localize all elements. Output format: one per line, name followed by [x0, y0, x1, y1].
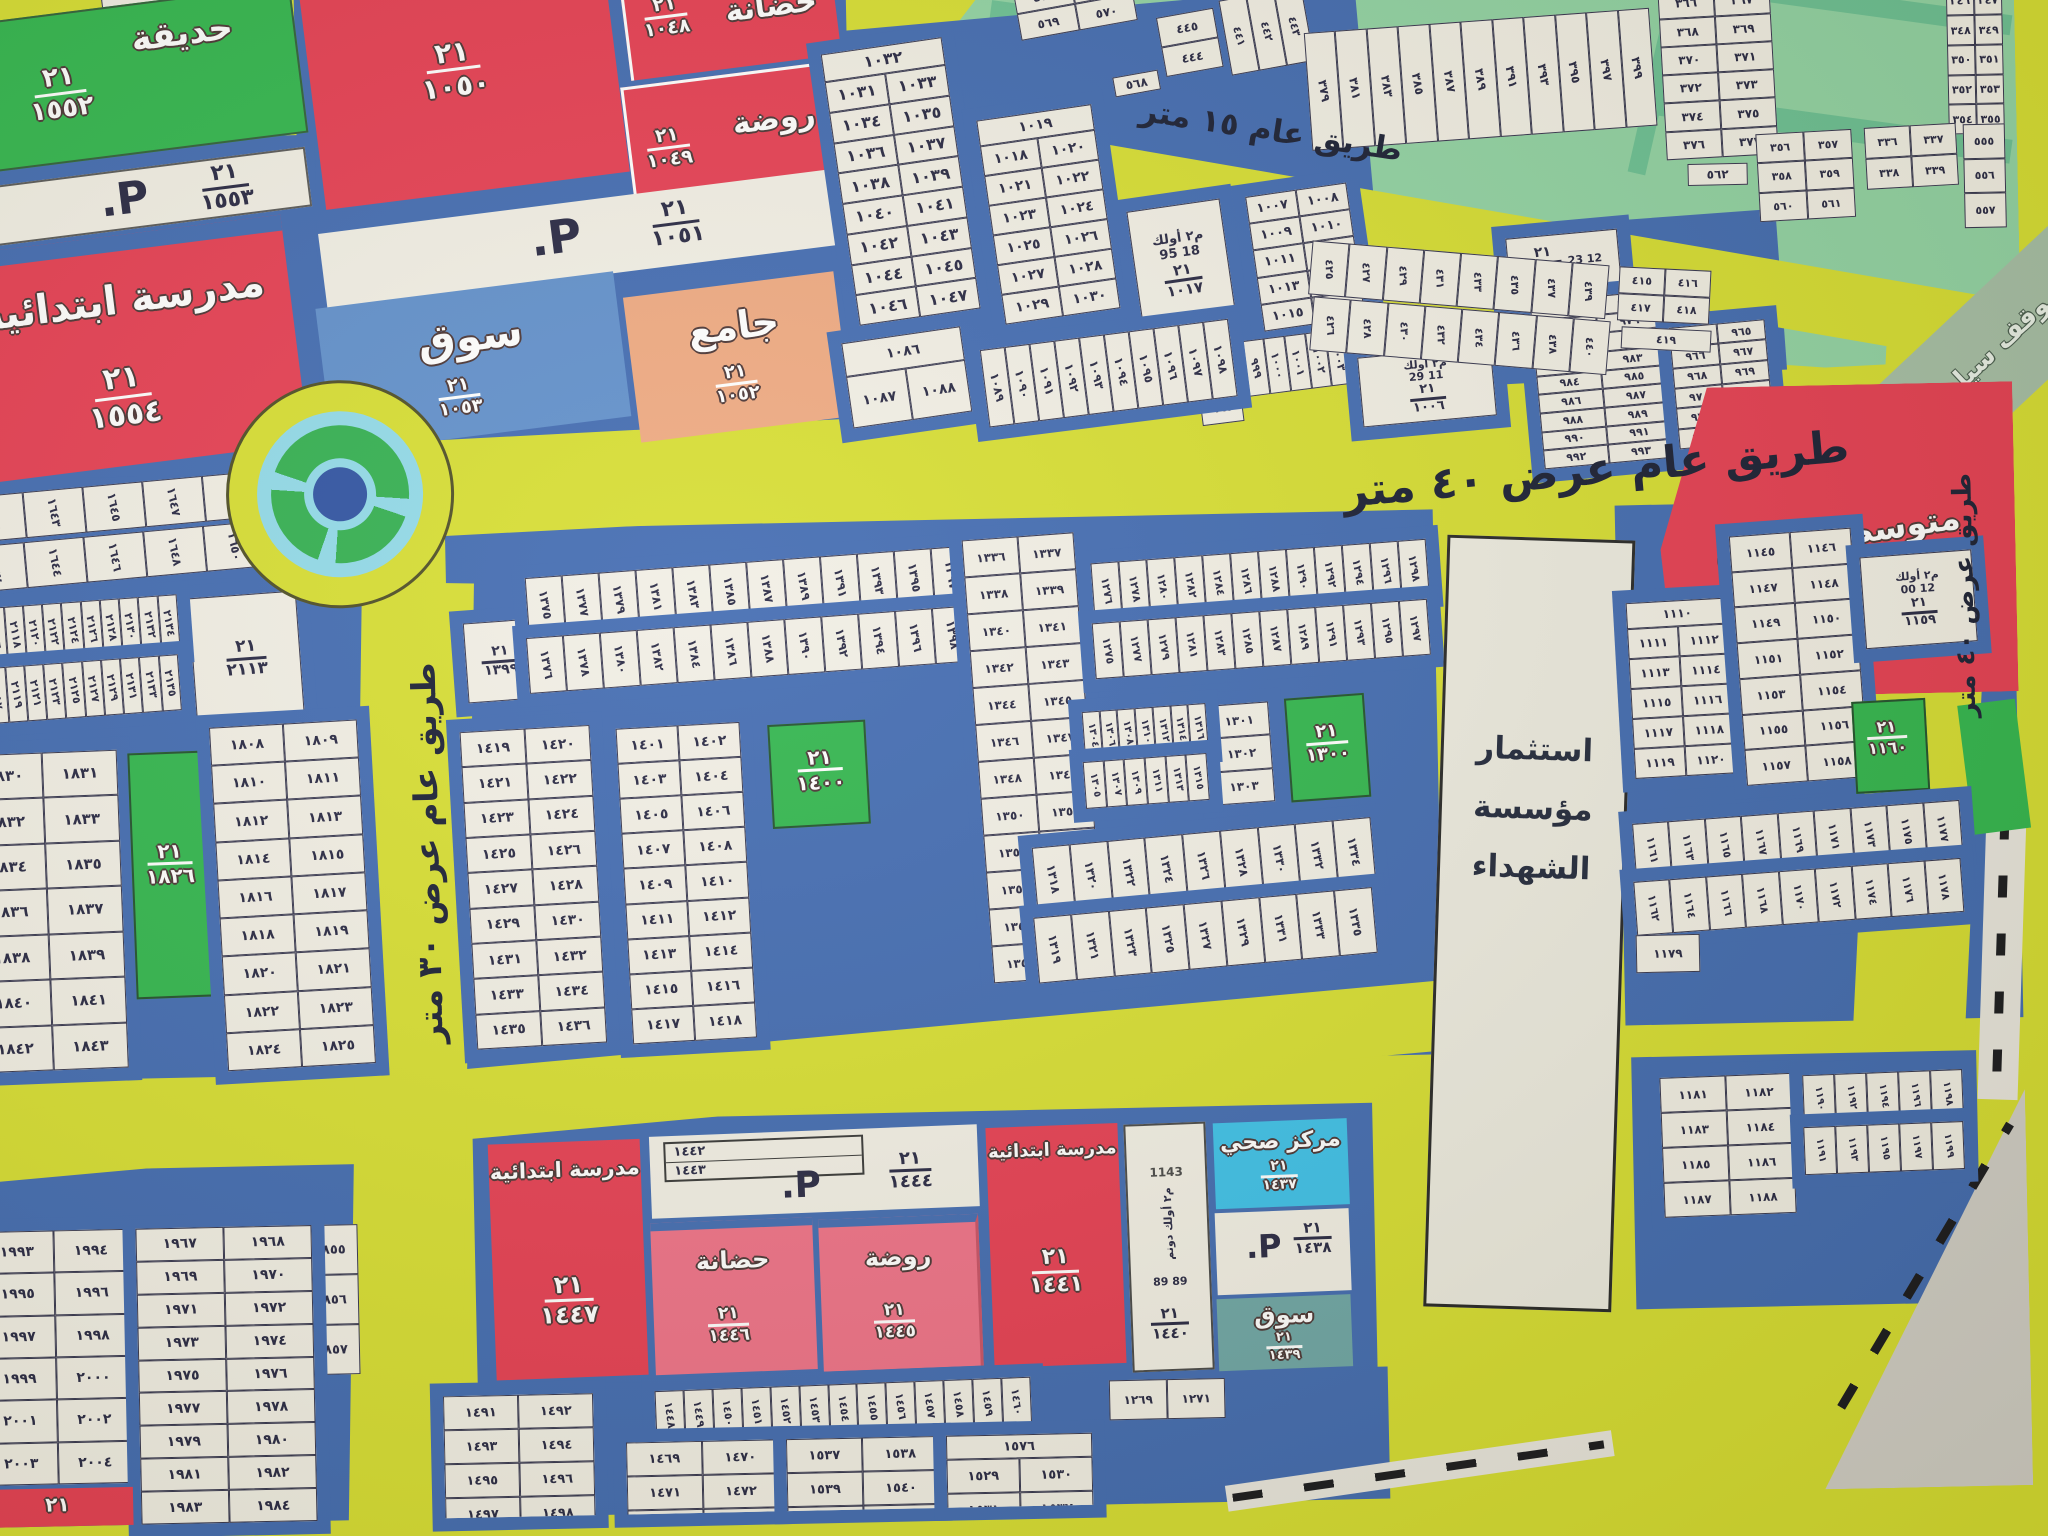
plot-cell: ١٣٣٦	[962, 536, 1021, 577]
p-label: P.	[780, 1164, 822, 1207]
plot-cell: ١٤٦٩	[626, 1441, 703, 1477]
plot-cell: ٥٦٠	[1759, 190, 1809, 222]
plot-cell: ١٤٠١	[616, 725, 680, 764]
plot-cell: ٤٣٥	[1494, 256, 1536, 313]
plot-cell: ١٩٧٣	[137, 1326, 226, 1361]
plot-cell: ١١٦٧	[1741, 813, 1781, 870]
plot-cell: ٣٧٤	[1664, 101, 1721, 132]
plot-cell: ١٣٠٦	[1099, 709, 1120, 757]
plot-cell: ١١٥٢	[1797, 634, 1860, 674]
plot-cell: ١٨١٨	[220, 914, 296, 956]
plot-cell: ١٥٣٧	[786, 1438, 863, 1474]
plot-cell: ١٦٤٤	[24, 537, 88, 588]
plot-cell: ١٣٣٠	[1257, 824, 1301, 893]
plot-cell: ١١٤٨	[1792, 563, 1855, 603]
plot-cell: ١٢٨٣	[1203, 613, 1235, 671]
plot-cell: ٢٠٠١	[0, 1400, 58, 1444]
plot-cell: ١٣٢٠	[1069, 841, 1113, 910]
plot-cell: ١٤٠٨	[683, 827, 747, 866]
plot-cell: ١٤٠٦	[681, 792, 745, 831]
zone-label: حضانة	[723, 0, 819, 29]
plot-cell: ١١١٦	[1681, 683, 1734, 716]
plot-number: ٢١١٠٤٩	[643, 122, 695, 173]
plot-cell: ٤١٧	[1617, 293, 1664, 322]
plot-cell: ١٦٤٧	[142, 476, 206, 527]
plot-cell: ١٩٨٤	[229, 1488, 318, 1523]
plot-cell: ٣٥٨	[1757, 161, 1807, 193]
plot-cell: ٤٣٣	[1457, 253, 1499, 310]
plot-cell: ١٦٤٥	[82, 481, 146, 532]
plot-cell: ١٤٩٣	[444, 1429, 520, 1465]
plot-cell: ١١٧٨	[1924, 858, 1964, 915]
plot-cell: ١٤٠٢	[677, 722, 741, 761]
road-label-right-40m: طريق عرض ٤٠ متر	[1913, 429, 2016, 761]
plot-number: ٢١١٤٤١	[1028, 1244, 1084, 1298]
plot-number: ٢١١٣٠٠	[1304, 720, 1351, 766]
awlak-block-1017: م٢ أولك18 95 ٢١١٠١٧	[1126, 199, 1236, 331]
plot-cell: ١٤٧٢	[703, 1473, 780, 1509]
plot-cell: ١٩٧٠	[224, 1258, 313, 1293]
plot-cell: ١٣٧٨	[563, 633, 604, 692]
plot-cell: ١٤٠٧	[621, 831, 685, 870]
plot-cell: ١٣٢١	[1071, 911, 1115, 980]
plot-cell: ٣٧٥	[1720, 98, 1777, 129]
plot-cell: ١٤٣٢	[536, 937, 603, 976]
plot-cell: ١٠٨٨	[905, 360, 972, 420]
plot-cell: ١١١١	[1627, 626, 1680, 659]
plot-cell: ١٤١٤	[689, 932, 753, 971]
plot-number: ٢١١٤٤٤	[888, 1148, 934, 1193]
plot-block-336-339: ٣٣٧٣٣٦٣٣٩٣٣٨	[1864, 123, 1959, 190]
plot-block-1808-1825: ١٨٠٩١٨٠٨١٨١١١٨١٠١٨١٣١٨١٢١٨١٥١٨١٤١٨١٧١٨١٦…	[209, 720, 376, 1072]
zone-label: استثمار مؤسسة الشهداء	[1439, 718, 1626, 900]
plot-cell: ١١٨١	[1659, 1075, 1726, 1113]
zone-label: سوق	[318, 293, 622, 379]
zone-label: سوق	[1217, 1298, 1352, 1331]
plot-cell: ١١٨٢	[1725, 1073, 1792, 1111]
plot-cell: ١٤٠٤	[679, 757, 743, 796]
plot-cell: ١٣٨٩	[783, 556, 824, 615]
plot-cell: ١٣١٨	[1032, 844, 1076, 913]
plot-cell: ١١٥٠	[1795, 599, 1858, 639]
plot-cell: ١٤١٢	[687, 897, 751, 936]
plot-cell: ١٩٩٣	[0, 1230, 54, 1274]
plot-cell: ١٣٣٢	[1295, 820, 1339, 889]
plot-cell: ٣٤٨	[1946, 15, 1975, 45]
plot-cell: ١١٩٨	[1930, 1069, 1964, 1118]
zone-label: روضة	[819, 1240, 977, 1274]
plot-cell: ١٤١٥	[629, 971, 693, 1010]
plot-cell: ١٢٩٨	[1398, 539, 1430, 597]
plot-cell: ١٢٩٣	[1343, 603, 1375, 661]
plot-cell: ١١٦٩	[1777, 811, 1817, 868]
plot-cell: ١٣٢٨	[1220, 827, 1264, 896]
plot-cell: ٣٣٩	[1911, 154, 1959, 188]
plot-cell: ١٨١٦	[218, 876, 294, 918]
plot-cell: ١٤٦٠	[1001, 1377, 1032, 1426]
plot-cell: ١٥٢٩	[946, 1458, 1020, 1494]
plot-cell: ١٣٨٠	[600, 630, 641, 689]
plot-number: ٢١١٤٣٩	[1266, 1330, 1303, 1363]
plot-cell: ٣٧١	[1716, 41, 1773, 72]
plot-block-1993-2004: ١٩٩٤١٩٩٣١٩٩٦١٩٩٥١٩٩٨١٩٩٧٢٠٠٠١٩٩٩٢٠٠٢٢٠٠١…	[0, 1229, 133, 1486]
plot-cell: ١١٦٦	[1706, 874, 1746, 931]
plot-cell: ١٤٩٥	[444, 1463, 520, 1499]
plot-cell: ١٦٤٣	[23, 487, 87, 538]
boundary-dashes	[1992, 817, 2009, 1087]
plot-id-latin: 1143	[1127, 1164, 1205, 1181]
plot-cell: ١٤١٦	[691, 967, 755, 1006]
plot-cell: ٣٧٦	[1665, 129, 1722, 160]
plot-cell: ١٣٨٦	[710, 622, 751, 681]
plot-cell: ١٣٢٧	[1184, 901, 1228, 970]
plot-cell: ١٨٣١	[42, 750, 119, 798]
plot-cell-419: ٤١٩	[1621, 326, 1712, 352]
plot-cell: ١٤٧٤	[703, 1507, 779, 1514]
plot-cell: ١١٧٧	[1923, 800, 1963, 857]
plot-cell: ١٥٣٢	[1020, 1491, 1093, 1508]
plot-cell: ٥٦١	[1807, 187, 1857, 219]
plot-cell: ١١٩٢	[1834, 1073, 1868, 1122]
plot-cell: ١٤٧٣	[627, 1509, 704, 1515]
plot-cell: ١١٧٣	[1850, 805, 1890, 862]
plot-cell: ١٩٦٨	[223, 1225, 312, 1260]
plot-cell: ٣٥٦	[1755, 132, 1805, 164]
plot-cell: ١٠٨٧	[846, 368, 913, 428]
plot-cell: ١٥٣٩	[787, 1472, 864, 1508]
plot-cell: ١٣٤٦	[975, 721, 1034, 762]
plot-cell: ١٢٧٦	[1090, 561, 1122, 619]
plot-cell: ١١١٨	[1683, 713, 1736, 746]
plot-cell: ١٤١٨	[693, 1002, 757, 1041]
plot-cell: ١٤٥١	[741, 1387, 772, 1436]
plot-cell: ١٣١٥	[1186, 753, 1210, 801]
plot-cell: ١٨٣٧	[47, 886, 124, 934]
plot-cell: ١٣١٦	[1188, 703, 1209, 751]
plot-cell: ٣٤٦	[1946, 0, 1975, 16]
plot-cell: ١٢٨٢	[1174, 555, 1206, 613]
plot-cell: ١٤٢٨	[532, 866, 599, 905]
plot-cell: ٤٣٧	[1531, 259, 1573, 316]
plot-cell: ١٢٨٧	[1259, 609, 1291, 667]
plot-cell: ١٦٤١	[0, 492, 27, 543]
plot-cell: ١٤٠٣	[618, 760, 682, 799]
plot-cell: ١٣٤١	[1023, 606, 1082, 647]
plot-cell: ١١٥٣	[1739, 675, 1802, 715]
plot-cell: ٣٥٢	[1948, 75, 1977, 105]
plot-cell: ١٣٠١	[1208, 701, 1270, 739]
p-label: P.	[97, 171, 152, 228]
plot-cell: ١٢٧١	[1167, 1378, 1226, 1419]
plot-cell: ١١١٥	[1630, 686, 1683, 719]
plot-cell: ٤٢٨	[1346, 300, 1388, 357]
plot-cell: ١٢٩٠	[1286, 547, 1318, 605]
plot-cell: ٤٣٠	[1384, 303, 1426, 360]
plot-cell: ١٤٢٤	[528, 795, 595, 834]
plot-cell: ١١١٩	[1634, 746, 1687, 779]
plot-block-1537-1544: ١٥٣٨١٥٣٧١٥٤٠١٥٣٩١٥٤٢١٥٤١١٥٤٤١٥٤٣	[786, 1436, 939, 1511]
plot-cell: ١٣٩٠	[784, 616, 825, 675]
plot-cell: ١٨١٧	[291, 872, 367, 914]
zone-label: مركز صحي	[1213, 1126, 1348, 1156]
plot-cell: ١٤٣٦	[540, 1007, 607, 1046]
plot-cell: ١٤٥٢	[770, 1386, 801, 1435]
plot-number: ٢١١٨٢٦	[145, 839, 196, 889]
plot-cell: ١١٥١	[1737, 639, 1800, 679]
plot-cell: ١٣٢٩	[1221, 897, 1265, 966]
plot-cell: ١٨٢٠	[222, 953, 298, 995]
plot-block-1181-1188: ١١٨٢١١٨١١١٨٤١١٨٣١١٨٦١١٨٥١١٨٨١١٨٧	[1659, 1073, 1796, 1218]
plot-block-356-561: ٣٥٧٣٥٦٣٥٩٣٥٨٥٦١٥٦٠	[1755, 129, 1856, 222]
plot-cell: ١٣٠٢	[1211, 735, 1273, 773]
plot-cell: ١٩٨٢	[228, 1455, 317, 1490]
plot-cell: ١٢٩٢	[1314, 545, 1346, 603]
plot-cell: ١٨٤٣	[52, 1022, 129, 1070]
plot-cell: ١٣٣١	[1259, 894, 1303, 963]
plot-block-1529-1536: ١٥٧٦ ١٥٣٠١٥٢٩١٥٣٢١٥٣١١٥٣٤١٥٣٣	[946, 1433, 1093, 1508]
plot-cell: ١٣٨٣	[672, 565, 713, 624]
parking-block-2113: ٢١٢١١٣	[188, 590, 305, 726]
plot-block-1401-1418: ١٤٠٢١٤٠١١٤٠٤١٤٠٣١٤٠٦١٤٠٥١٤٠٨١٤٠٧١٤١٠١٤٠٩…	[616, 722, 757, 1044]
plot-cell: ١٥٤٠	[863, 1470, 940, 1506]
plot-cell: ١٩٩٤	[53, 1229, 128, 1273]
plot-strip-1191-1199: ١١٩٩١١٩٧١١٩٥١١٩٣١١٩١	[1803, 1121, 1965, 1175]
plot-cell: ١٩٦٧	[135, 1227, 224, 1262]
plot-cell: ١٤٤٨	[655, 1390, 686, 1439]
mini-strip-1442-1443: ١٤٤٢ ١٤٤٣	[663, 1135, 864, 1183]
plot-cell: ٢٠٠٢	[57, 1398, 132, 1442]
plot-cell: ٣٥١	[1975, 44, 2004, 74]
plot-cell: ١٣١٢	[1152, 706, 1173, 754]
plot-cell: ١٣٩٤	[858, 611, 899, 670]
plot-cell: ١٤٩٦	[519, 1461, 595, 1497]
plot-cell: ١٤٥٠	[712, 1388, 743, 1437]
strip-block-1440: 1143 م٢ أولك دونم 89 89 ٢١١٤٤٠	[1123, 1122, 1214, 1373]
plot-number: ٢١١٤٤٥	[873, 1300, 916, 1343]
plot-cell: ١١٨٤	[1727, 1108, 1794, 1146]
plot-cell: ١٨١١	[285, 758, 361, 800]
plot-cell: ١١٩٩	[1931, 1121, 1965, 1170]
plot-cell: ١٥٣١	[947, 1492, 1021, 1508]
plot-cell: ١٤٩٢	[518, 1393, 594, 1429]
plot-col-444-445: ٤٤٥٤٤٤	[1156, 8, 1224, 77]
plot-cell: ١٩٩٩	[0, 1357, 57, 1401]
plot-cell: ١١٩٤	[1866, 1072, 1900, 1121]
plot-cell: ١٣٣٩	[1020, 569, 1079, 610]
plot-cell: ١٥٣٠	[1019, 1457, 1093, 1493]
awlak-numbers: 89 89	[1131, 1274, 1209, 1290]
plot-col-1301-1303: ١٣٠١١٣٠٢١٣٠٣	[1208, 701, 1275, 805]
plot-strip-1304-1316: ١٣١٦١٣١٤١٣١٢١٣١٠١٣٠٨١٣٠٦١٣٠٤	[1082, 703, 1209, 759]
plot-cell: ١٤٤٩	[683, 1389, 714, 1438]
plot-cell: ١٤٩٨	[520, 1495, 595, 1518]
plot-block-1491-1508: ١٤٩٢١٤٩١١٤٩٤١٤٩٣١٤٩٦١٤٩٥١٤٩٨١٤٩٧١٥٠٠١٤٩٩…	[443, 1393, 596, 1518]
plot-cell: ٣٤٧	[1974, 0, 2003, 15]
plot-cell: ١٨٢٤	[226, 1029, 302, 1071]
plot-cell: ١٢٨٥	[1231, 611, 1263, 669]
plot-cell: ١٤٣٤	[538, 972, 605, 1011]
city-plan-map: ١٥٥١ حديقة ٢١١٥٥٢ P. ٢١١٥٥٣ مدرسة ابتدائ…	[0, 0, 2048, 1536]
plot-cell: ١٤٩٤	[519, 1427, 595, 1463]
plot-cell: ١٨٤١	[50, 977, 127, 1025]
plot-block-1110-1120: ١١١٠ ١١١٢١١١١١١١٤١١١٣١١١٦١١١٥١١١٨١١١٧١١٢…	[1626, 598, 1738, 779]
plot-cell: ١٥٤١	[787, 1506, 864, 1512]
plot-cell: ١١١٧	[1632, 716, 1685, 749]
plot-cell: ٥٥٧	[1964, 193, 2007, 229]
plot-cell: ٢٠٠٤	[58, 1441, 133, 1485]
plot-cell: ١٨٤٢	[0, 1025, 54, 1073]
plot-cell: ١١٥٧	[1745, 746, 1808, 786]
plot-cell: ١٣٠٥	[1083, 761, 1107, 809]
zone-label: جامع	[625, 291, 841, 361]
plot-cell: ١٣٤٤	[972, 684, 1031, 725]
plot-cell: ١٢٩٤	[1342, 543, 1374, 601]
zone-nursery-1446: حضانة ٢١١٤٤٦	[650, 1217, 818, 1375]
plot-cell: ١٤٢٦	[530, 831, 597, 870]
plot-number: ٢١١٤٤٦	[707, 1304, 750, 1347]
plot-cell: ١٣٨٨	[747, 619, 788, 678]
plot-cell: ٥٥٦	[1963, 158, 2006, 194]
plot-number: ٢١١٠٥٠	[416, 33, 492, 107]
plot-cell: ١١٦٤	[1670, 877, 1710, 934]
plot-cell: ١٩٧٧	[139, 1391, 228, 1426]
plot-cell: ١٢٩٧	[1399, 599, 1431, 657]
plot-cell: ٣٣٧	[1910, 123, 1958, 157]
plot-cell: ٣٥٠	[1947, 45, 1976, 75]
plot-cell: ١٣١٠	[1135, 707, 1156, 755]
plot-strip-1190-1198: ١١٩٨١١٩٦١١٩٤١١٩٢١١٩٠	[1802, 1069, 1964, 1123]
plot-block-344-355: ٣٤٥٣٤٤٣٤٧٣٤٦٣٤٩٣٤٨٣٥١٣٥٠٣٥٣٣٥٢٣٥٥٣٥٤	[1945, 0, 2005, 135]
plot-cell: ١٣٣٨	[964, 573, 1023, 614]
plot-cell: ٣٧٢	[1662, 72, 1719, 103]
plot-cell: ٢٠٠٣	[0, 1442, 59, 1486]
plot-cell: ١٨١٢	[213, 800, 289, 842]
plot-number: ٢١١٥٥٢	[25, 59, 96, 128]
plot-cell: ١١٨٨	[1729, 1178, 1796, 1216]
plot-cell: ٤٣٩	[1568, 262, 1610, 319]
plot-cell: ٤٢٩	[1382, 247, 1424, 304]
plot-cell: ١٣٧٥	[525, 575, 566, 634]
plot-cell: ١٨٠٨	[209, 724, 285, 766]
plot-cell: ١١٧٦	[1888, 861, 1928, 918]
plot-cell: ١٣٠٩	[1124, 758, 1148, 806]
plot-number: ٢١١٠٤٨	[640, 0, 692, 42]
plot-cell: ١٨٣٢	[0, 798, 45, 846]
plot-cell: ١٣٨٢	[637, 627, 678, 686]
plot-cell: ١٩٦٩	[136, 1260, 225, 1295]
plot-cell: ١٢٨٩	[1287, 607, 1319, 665]
plot-cell: ١٨١٥	[289, 834, 365, 876]
plot-number: ٢١	[45, 1492, 70, 1517]
plot-cell: ١٨٤٠	[0, 980, 52, 1028]
plot-cell: ١٩٧٢	[225, 1291, 314, 1326]
plot-cell: ٣٥٧	[1803, 129, 1853, 161]
plot-cell: ١٣٢٥	[1146, 904, 1190, 973]
plot-block-415-418: ٤١٦٤١٥٤١٨٤١٧	[1617, 266, 1712, 324]
plot-cell: ١١٨٣	[1661, 1110, 1728, 1148]
plot-cell: ٤١٥	[1618, 266, 1665, 295]
plot-cell: ٥٥٥	[1963, 123, 2006, 159]
plot-cell: ٤٣٨	[1532, 315, 1574, 372]
plot-cell: ١٨١٠	[211, 762, 287, 804]
plot-cell: ١٣٣٥	[1334, 887, 1378, 956]
plot-cell: ١٢٨٠	[1146, 557, 1178, 615]
plot-cell: ١٣٩٣	[857, 551, 898, 610]
plot-cell: ٣٦٩	[1715, 13, 1772, 44]
plot-number: ٢١١٤٤٠	[1150, 1304, 1190, 1342]
plot-cell: ١١٨٦	[1728, 1143, 1795, 1181]
plot-cell: ٣٥٩	[1805, 158, 1855, 190]
plot-cell: ١١٥٥	[1742, 710, 1805, 750]
plot-cell: ٤١٦	[1664, 269, 1711, 298]
plot-cell: ١١٨٧	[1663, 1180, 1730, 1218]
plot-cell: ١٣٤٨	[978, 758, 1037, 799]
plot-cell: ١٣٠٨	[1117, 708, 1138, 756]
plot-cell: ٣٥٣	[1976, 74, 2005, 104]
plot-cell: ١٣٣٤	[1333, 817, 1377, 886]
plot-cell: ١٨١٤	[215, 838, 291, 880]
plot-cell: ١٣٥٠	[981, 795, 1040, 836]
zone-parking-1444: ١٤٤٢ ١٤٤٣ P. ٢١١٤٤٤	[649, 1124, 980, 1219]
plot-cell: ١٨٠٩	[283, 720, 359, 762]
plot-number: ٢١١٠٥٢	[712, 360, 761, 408]
plot-pair-1269-1271: ١٢٧١١٢٦٩	[1109, 1378, 1226, 1420]
awlak-note: م٢ أولك دونم	[1129, 1216, 1207, 1232]
plot-cell: ١٢٧٨	[1118, 559, 1150, 617]
plot-cell: ١٩٨٠	[228, 1422, 317, 1457]
plot-cell: ١١٩١	[1803, 1126, 1837, 1175]
plot-cell: ١٣١٣	[1165, 754, 1189, 802]
plot-cell: ١٤٩٧	[445, 1497, 521, 1519]
plot-cell: ١٤٩١	[443, 1395, 519, 1431]
plot-cell: ١٩٨١	[140, 1457, 229, 1492]
zone-label: مدرسة ابتدائية	[488, 1155, 641, 1185]
plot-cell: ١٤٢٠	[524, 725, 591, 764]
plot-number: ٢١١٠٥٣	[435, 373, 484, 421]
plot-cell: ١٢٩٦	[1370, 541, 1402, 599]
plot-cell: ١١٩٦	[1898, 1070, 1932, 1119]
plot-cell: ١٣٢٢	[1107, 838, 1151, 907]
plot-cell: ١٣٧٩	[599, 570, 640, 629]
plot-cell: ٤٢٧	[1345, 244, 1387, 301]
plot-block-1830-1843: ١٨٣١١٨٣٠١٨٣٣١٨٣٢١٨٣٥١٨٣٤١٨٣٧١٨٣٦١٨٣٩١٨٣٨…	[0, 750, 129, 1074]
plot-cell: ١٣٨١	[635, 567, 676, 626]
plot-cell: ١٢٦٩	[1109, 1379, 1168, 1420]
zone-label: روضة	[730, 97, 817, 142]
plot-cell-562: ٥٦٢	[1687, 163, 1747, 186]
plot-cell: ١٤١٣	[627, 936, 691, 975]
plot-cell: ١١٩٥	[1867, 1123, 1901, 1172]
zone-label: حديقة	[129, 7, 235, 59]
plot-cell: ١٣٩٦	[895, 608, 936, 667]
zone-green-1826: ٢١١٨٢٦	[127, 751, 214, 1000]
plot-cell: ١٨١٣	[287, 796, 363, 838]
plot-cell: ١٤٥٣	[799, 1385, 830, 1434]
plot-cell: ١١٧١	[1814, 808, 1854, 865]
plot-cell: ١٦٤٨	[143, 526, 207, 577]
plot-cell: ١٤١١	[625, 901, 689, 940]
zone-label: حضانة	[651, 1243, 814, 1277]
plot-cell: ١٤٧١	[627, 1475, 704, 1511]
plot-cell: ٤٢٥	[1308, 240, 1350, 297]
plot-cell: ١١١٤	[1680, 653, 1733, 686]
plot-cell: ١٩٧٤	[225, 1324, 314, 1359]
zone-investment: استثمار مؤسسة الشهداء	[1423, 535, 1635, 1313]
zone-health-1437: مركز صحي ٢١١٤٣٧	[1213, 1118, 1350, 1209]
plot-cell: ١١٦٥	[1705, 816, 1745, 873]
plot-cell: ١٣٠٧	[1103, 759, 1127, 807]
plot-cell: ١١٤٦	[1790, 528, 1853, 568]
